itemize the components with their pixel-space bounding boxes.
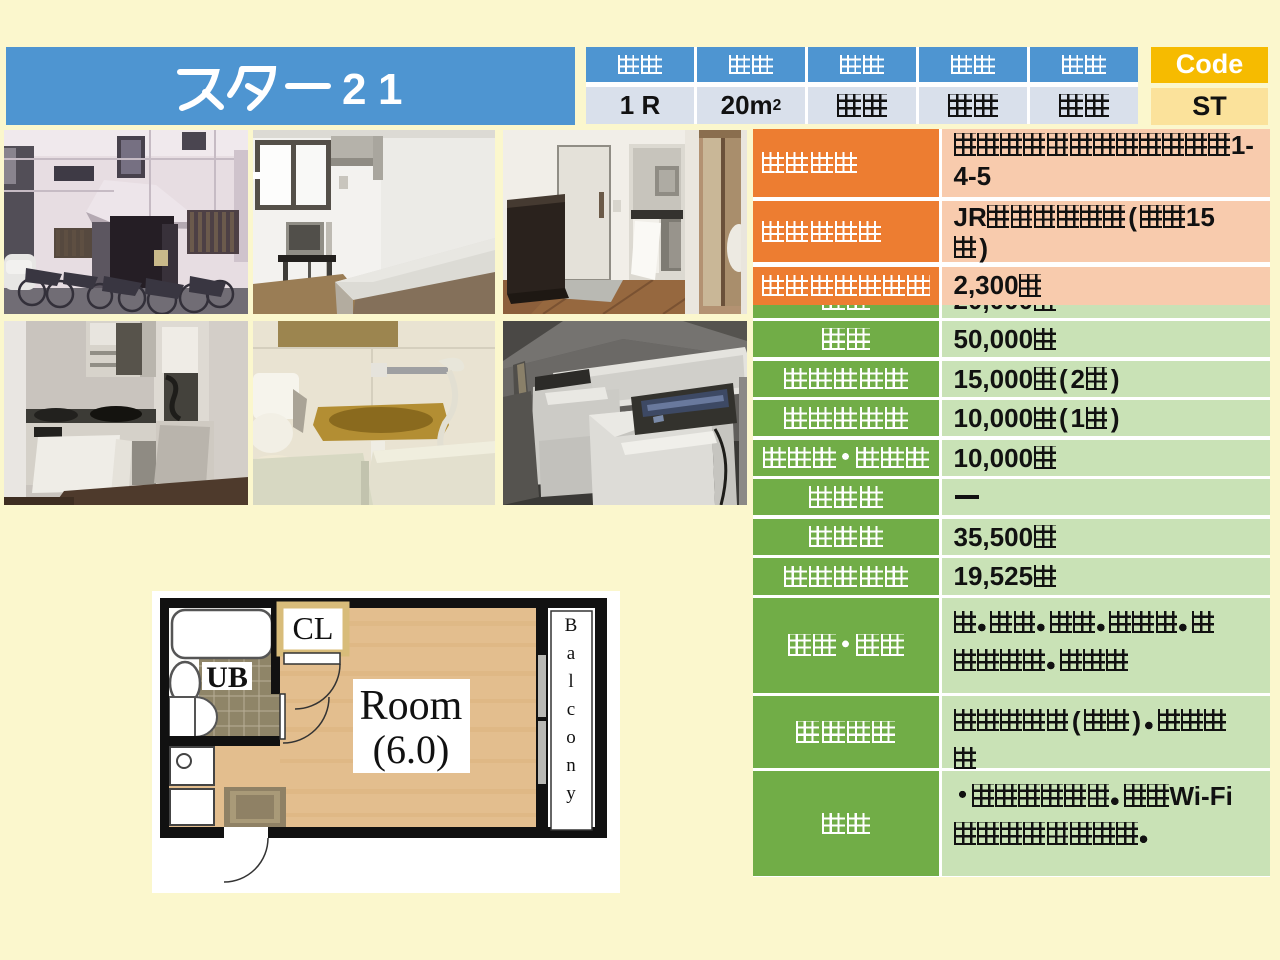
svg-text:UB: UB bbox=[206, 661, 248, 694]
svg-text:Room: Room bbox=[360, 683, 463, 729]
svg-text:2: 2 bbox=[342, 65, 366, 112]
svg-text:y: y bbox=[566, 783, 576, 804]
svg-text:1: 1 bbox=[378, 65, 402, 112]
svg-text:c: c bbox=[567, 699, 575, 720]
svg-text:l: l bbox=[568, 671, 573, 692]
svg-text:n: n bbox=[566, 755, 576, 776]
svg-text:(6.0): (6.0) bbox=[373, 727, 450, 772]
svg-text:a: a bbox=[567, 643, 576, 664]
svg-text:B: B bbox=[565, 615, 578, 636]
svg-text:o: o bbox=[566, 727, 576, 748]
svg-text:CL: CL bbox=[293, 610, 334, 646]
